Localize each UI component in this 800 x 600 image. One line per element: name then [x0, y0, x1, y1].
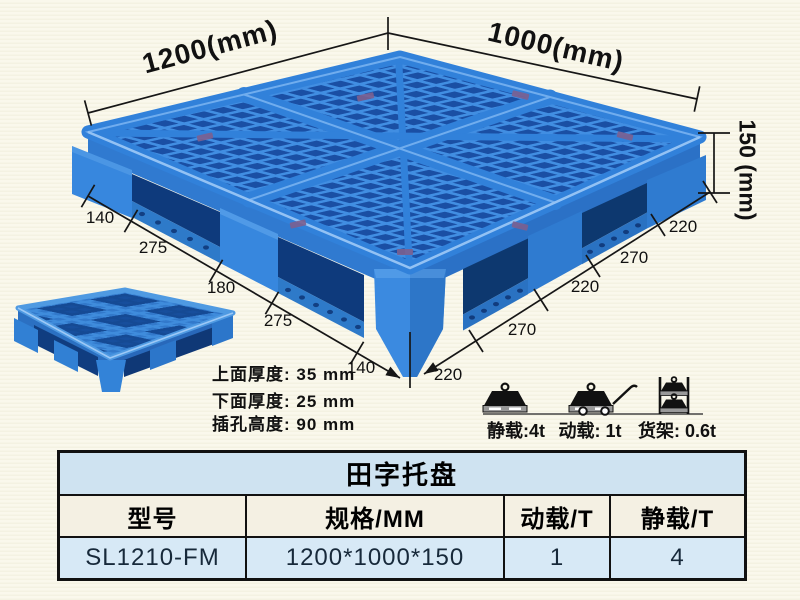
- dim-left-1: 140: [86, 208, 114, 228]
- dim-left-3: 180: [207, 278, 235, 298]
- dim-right-4: 270: [508, 320, 536, 340]
- spec-slot-height: 插孔高度: 90 mm: [212, 410, 355, 435]
- cell-dynamic-load: 1: [503, 538, 609, 578]
- spec-bottom-thickness: 下面厚度: 25 mm: [212, 387, 355, 412]
- spec-top-thickness: 上面厚度: 35 mm: [212, 360, 355, 385]
- header-size: 规格/MM: [245, 496, 503, 536]
- header-dynamic-load: 动载/T: [503, 496, 609, 536]
- load-icons: [483, 377, 703, 415]
- rack-load-label: 货架: 0.6t: [638, 417, 716, 443]
- dim-right-3: 220: [571, 277, 599, 297]
- cell-static-load: 4: [609, 538, 744, 578]
- pallet-spec-sheet: 1200(mm) 1000(mm) 150 (mm) 140 275 180 2…: [0, 0, 800, 600]
- dim-right-5: 220: [434, 365, 462, 385]
- cell-model: SL1210-FM: [60, 538, 245, 578]
- dim-left-4: 275: [264, 311, 292, 331]
- header-static-load: 静载/T: [609, 496, 744, 536]
- dim-right-2: 270: [620, 248, 648, 268]
- spec-table-header-row: 型号 规格/MM 动载/T 静载/T: [60, 496, 744, 538]
- dynamic-load-icon: [569, 384, 637, 415]
- rack-load-icon: [660, 377, 688, 414]
- dimension-height-label: 150 (mm): [734, 120, 761, 221]
- dynamic-load-label: 动载: 1t: [559, 417, 622, 443]
- spec-table-data-row: SL1210-FM 1200*1000*150 1 4: [60, 538, 744, 578]
- static-load-label: 静载:4t: [487, 417, 545, 443]
- dim-right-1: 220: [669, 217, 697, 237]
- spec-table-title: 田字托盘: [60, 453, 744, 496]
- cell-size: 1200*1000*150: [245, 538, 503, 578]
- spec-table: 田字托盘 型号 规格/MM 动载/T 静载/T SL1210-FM 1200*1…: [57, 450, 747, 581]
- small-pallet: [14, 290, 233, 392]
- static-load-icon: [483, 384, 527, 412]
- header-model: 型号: [60, 496, 245, 536]
- dim-left-2: 275: [139, 238, 167, 258]
